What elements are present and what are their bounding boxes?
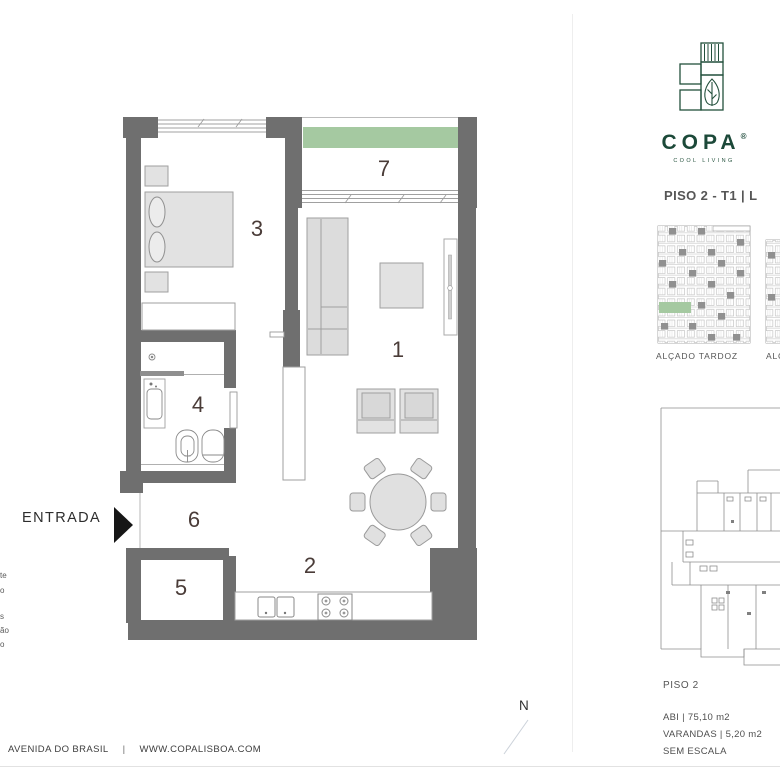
legend-fragment: ão: [0, 626, 9, 635]
room-number-hall: 6: [188, 507, 200, 532]
kitchen-counter: [235, 592, 432, 620]
unit-title: PISO 2 - T1 | L: [664, 188, 757, 203]
copa-logo: COPA® COOL LIVING: [648, 38, 760, 164]
area-abi: ABI | 75,10 m2: [663, 712, 730, 723]
footer-separator: |: [123, 744, 126, 755]
elevation-label-tardoz: ALÇADO TARDOZ: [656, 351, 738, 361]
overview-floor-label: PISO 2: [663, 680, 699, 691]
dining-set: [350, 457, 446, 546]
north-arrow-icon: [504, 720, 528, 754]
room-number-bathroom: 4: [192, 392, 204, 417]
registered-mark: ®: [741, 132, 747, 141]
footer: AVENIDA DO BRASIL|WWW.COPALISBOA.COM: [8, 744, 261, 755]
entrance-arrow-icon: [114, 507, 133, 543]
room-number-bedroom: 3: [251, 216, 263, 241]
legend-fragment: o: [0, 586, 4, 595]
elevation-label-partial: ALÇ: [766, 351, 780, 361]
door-leaves: [230, 332, 284, 428]
legend-fragment: o: [0, 640, 4, 649]
legend-fragment: te: [0, 571, 7, 580]
room-number-storage: 5: [175, 575, 187, 600]
area-varandas: VARANDAS | 5,20 m2: [663, 729, 762, 740]
brand-name: COPA®: [648, 126, 760, 154]
bedroom-furniture: [142, 166, 235, 330]
scale-note: SEM ESCALA: [663, 746, 727, 757]
balcony-green-strip: [303, 127, 458, 148]
overview-plan: [661, 408, 780, 665]
north-label: N: [519, 698, 529, 713]
page-bottom-rule: [0, 766, 780, 767]
room-number-balcony: 7: [378, 156, 390, 181]
hall-cabinet: [283, 367, 305, 480]
elevation-right-partial: [766, 240, 780, 343]
main-floorplan: 1 2 3 4 5 6 7: [114, 117, 477, 640]
brand-tagline: COOL LIVING: [648, 158, 760, 164]
room-number-kitchen: 2: [304, 553, 316, 578]
entrance-label: ENTRADA: [22, 510, 101, 526]
footer-address: AVENIDA DO BRASIL: [8, 744, 109, 755]
elevation-unit-highlight: [659, 302, 691, 313]
brochure-page: { "branding": { "name": "COPA", "registe…: [0, 0, 780, 780]
living-furniture: [307, 218, 457, 433]
elevation-tardoz: [658, 226, 750, 343]
bathroom-fixtures: [140, 354, 224, 465]
vertical-divider: [572, 14, 573, 752]
footer-website: WWW.COPALISBOA.COM: [139, 744, 261, 755]
room-number-living: 1: [392, 337, 404, 362]
legend-fragment: s: [0, 612, 4, 621]
